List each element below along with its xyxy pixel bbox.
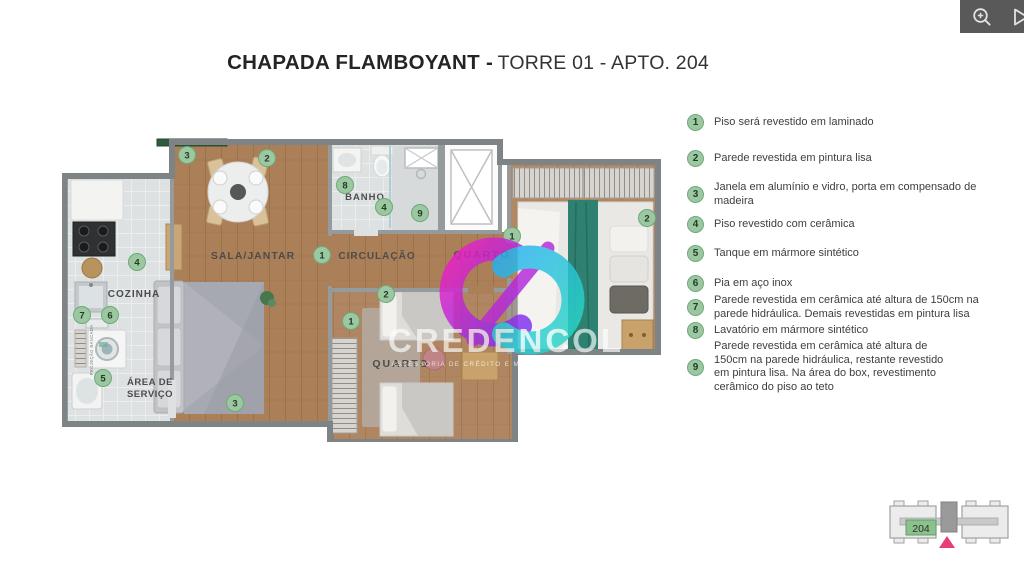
svg-text:2: 2: [644, 213, 649, 224]
badge-bedroom2-wall: 2: [378, 286, 395, 303]
single-bed-2: [380, 383, 453, 436]
label-bedroom2: QUARTO: [372, 358, 429, 370]
unit-highlight: 204: [906, 520, 936, 535]
badge-bath-floor: 4: [376, 199, 393, 216]
legend-badge: 6: [687, 275, 704, 292]
badge-bedroom1-wall: 2: [639, 210, 656, 227]
svg-text:3: 3: [232, 398, 237, 409]
floor-plan: SALA/JANTAR COZINHA ÁREA DE SERVIÇO BANH…: [62, 136, 677, 442]
legend-text: Parede revestida em pintura lisa: [714, 152, 872, 166]
legend-item: 4Piso revestido com cerâmica: [687, 216, 1019, 233]
legend-text: Pia em aço inox: [714, 277, 792, 291]
page-title: CHAPADA FLAMBOYANT - TORRE 01 - APTO. 20…: [0, 51, 936, 75]
rug-living: [184, 282, 264, 414]
legend-text: Janela em alumínio e vidro, porta em com…: [714, 181, 1019, 208]
bedroom2-door-opening: [468, 286, 494, 294]
wardrobe-bedroom2: [332, 338, 357, 433]
svg-text:1: 1: [348, 316, 354, 327]
legend-badge: 4: [687, 216, 704, 233]
badge-bath-sink: 8: [337, 177, 354, 194]
svg-text:6: 6: [107, 310, 112, 321]
svg-text:9: 9: [417, 208, 422, 219]
desk-bedroom2: [462, 352, 498, 380]
legend-badge: 8: [687, 322, 704, 339]
stove: [73, 222, 115, 256]
label-service-line2: SERVIÇO: [127, 389, 173, 400]
svg-text:2: 2: [264, 153, 269, 164]
badge-bath-wall: 9: [412, 205, 429, 222]
svg-text:4: 4: [381, 202, 387, 213]
svg-text:3: 3: [184, 150, 189, 161]
zoom-in-icon[interactable]: [971, 6, 993, 28]
badge-bedroom1-floor: 1: [504, 228, 521, 245]
legend-badge: 5: [687, 245, 704, 262]
next-page-icon[interactable]: [1011, 6, 1024, 28]
legend-badge: 3: [687, 186, 704, 203]
elevator-shaft: [451, 150, 492, 224]
legend-item: 9Parede revestida em cerâmica até altura…: [687, 340, 1019, 394]
legend-badge: 2: [687, 150, 704, 167]
badge-living-wall: 2: [259, 150, 276, 167]
wardrobe-bedroom1: [513, 168, 654, 198]
finish-legend: 1Piso será revestido em laminado 2Parede…: [687, 114, 1019, 394]
legend-badge: 9: [687, 359, 704, 376]
legend-text: Parede revestida em cerâmica até altura …: [714, 340, 954, 394]
badge-hall-floor: 1: [314, 247, 331, 264]
page: CHAPADA FLAMBOYANT - TORRE 01 - APTO. 20…: [0, 0, 1024, 573]
duct-shaft: [405, 148, 438, 168]
legend-text: Piso revestido com cerâmica: [714, 218, 855, 232]
unit-number: 204: [912, 523, 930, 535]
title-project: CHAPADA FLAMBOYANT -: [227, 51, 493, 74]
fruit-bowl: [82, 258, 102, 278]
legend-text: Tanque em mármore sintético: [714, 247, 859, 261]
svg-text:5: 5: [100, 373, 106, 384]
bathroom-vanity: [333, 148, 361, 172]
legend-item: 3Janela em alumínio e vidro, porta em co…: [687, 181, 1019, 208]
label-living: SALA/JANTAR: [211, 250, 295, 262]
dining-set: [206, 157, 268, 227]
position-marker: [939, 536, 955, 548]
bedside-chest: [622, 320, 653, 350]
label-service-line1: ÁREA DE: [127, 377, 173, 388]
legend-text: Lavatório em mármore sintético: [714, 324, 868, 338]
svg-text:2: 2: [383, 289, 388, 300]
label-bedroom1: QUARTO: [453, 249, 510, 261]
badge-living-window: 3: [179, 147, 196, 164]
bench-projection: [75, 330, 86, 367]
label-hall: CIRCULAÇÃO: [338, 249, 415, 262]
legend-badge: 7: [687, 299, 704, 316]
legend-item: 5Tanque em mármore sintético: [687, 245, 1019, 262]
badge-kitchen-floor: 4: [129, 254, 146, 271]
legend-item: 6Pia em aço inox: [687, 275, 1019, 292]
legend-item: 8Lavatório em mármore sintético: [687, 322, 1019, 339]
label-bench-projection: PROJEÇÃO BANCADA: [89, 325, 94, 376]
legend-text: Parede revestida em cerâmica até altura …: [714, 294, 979, 321]
legend-item: 2Parede revestida em pintura lisa: [687, 150, 1019, 167]
svg-text:4: 4: [134, 257, 140, 268]
legend-badge: 1: [687, 114, 704, 131]
badge-kitchen-sink: 6: [102, 307, 119, 324]
badge-living-door: 3: [227, 395, 244, 412]
kitchen-counter: [71, 180, 123, 220]
legend-text: Piso será revestido em laminado: [714, 116, 874, 130]
badge-service-tank: 5: [95, 370, 112, 387]
building-key-plan: 204: [884, 492, 1014, 554]
badge-kitchen-wall: 7: [74, 307, 91, 324]
label-kitchen: COZINHA: [108, 289, 161, 300]
legend-item: 7Parede revestida em cerâmica até altura…: [687, 294, 1019, 321]
badge-bedroom2-floor: 1: [343, 313, 360, 330]
svg-text:8: 8: [342, 180, 347, 191]
svg-text:1: 1: [319, 250, 325, 261]
title-unit: TORRE 01 - APTO. 204: [498, 52, 709, 74]
legend-item: 1Piso será revestido em laminado: [687, 114, 1019, 131]
viewer-toolbar: [960, 0, 1024, 33]
svg-text:1: 1: [509, 231, 515, 242]
svg-text:7: 7: [79, 310, 84, 321]
bath-door-opening: [354, 228, 378, 236]
